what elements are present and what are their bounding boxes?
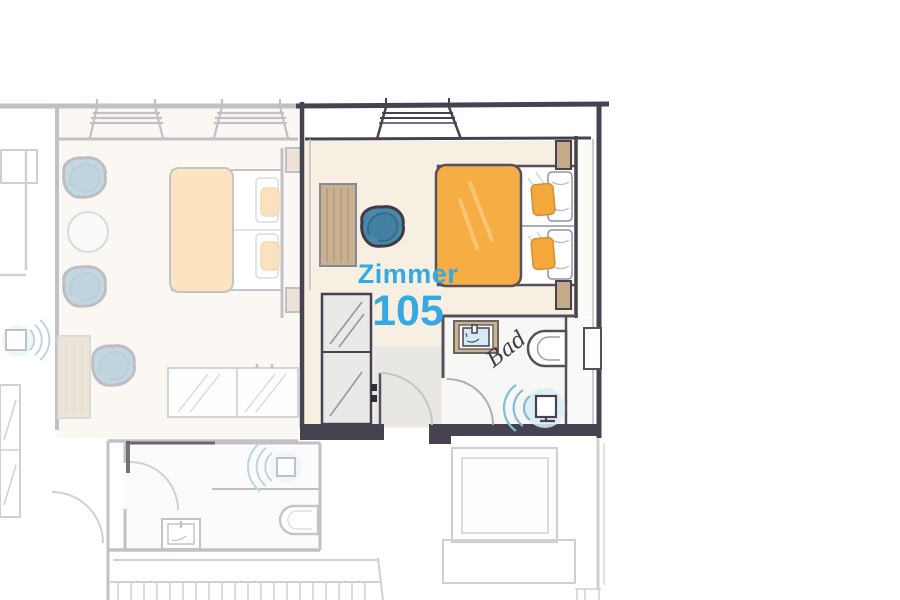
left-room-table xyxy=(68,212,108,252)
far-left-shower-icon xyxy=(2,320,49,360)
room-105-hotspot[interactable] xyxy=(300,102,605,442)
left-room-armchair-3 xyxy=(93,346,135,385)
left-room-armchair-2 xyxy=(64,267,106,306)
elevator-shaft xyxy=(452,448,557,542)
floorplan-canvas: Zimmer 105 Bad xyxy=(0,0,900,600)
right-faded-wall xyxy=(575,436,604,600)
lower-left-toilet-icon xyxy=(280,506,318,534)
corridor-door-arc xyxy=(52,492,103,543)
left-room-wardrobe xyxy=(58,336,90,418)
lower-left-bathroom xyxy=(108,443,320,550)
left-room-mirror-cabinet xyxy=(168,364,298,417)
left-room-armchair-1 xyxy=(64,158,106,197)
balcony-stairs xyxy=(110,558,383,600)
lower-left-sink-icon xyxy=(162,519,200,549)
lower-slab-outline xyxy=(443,540,575,583)
